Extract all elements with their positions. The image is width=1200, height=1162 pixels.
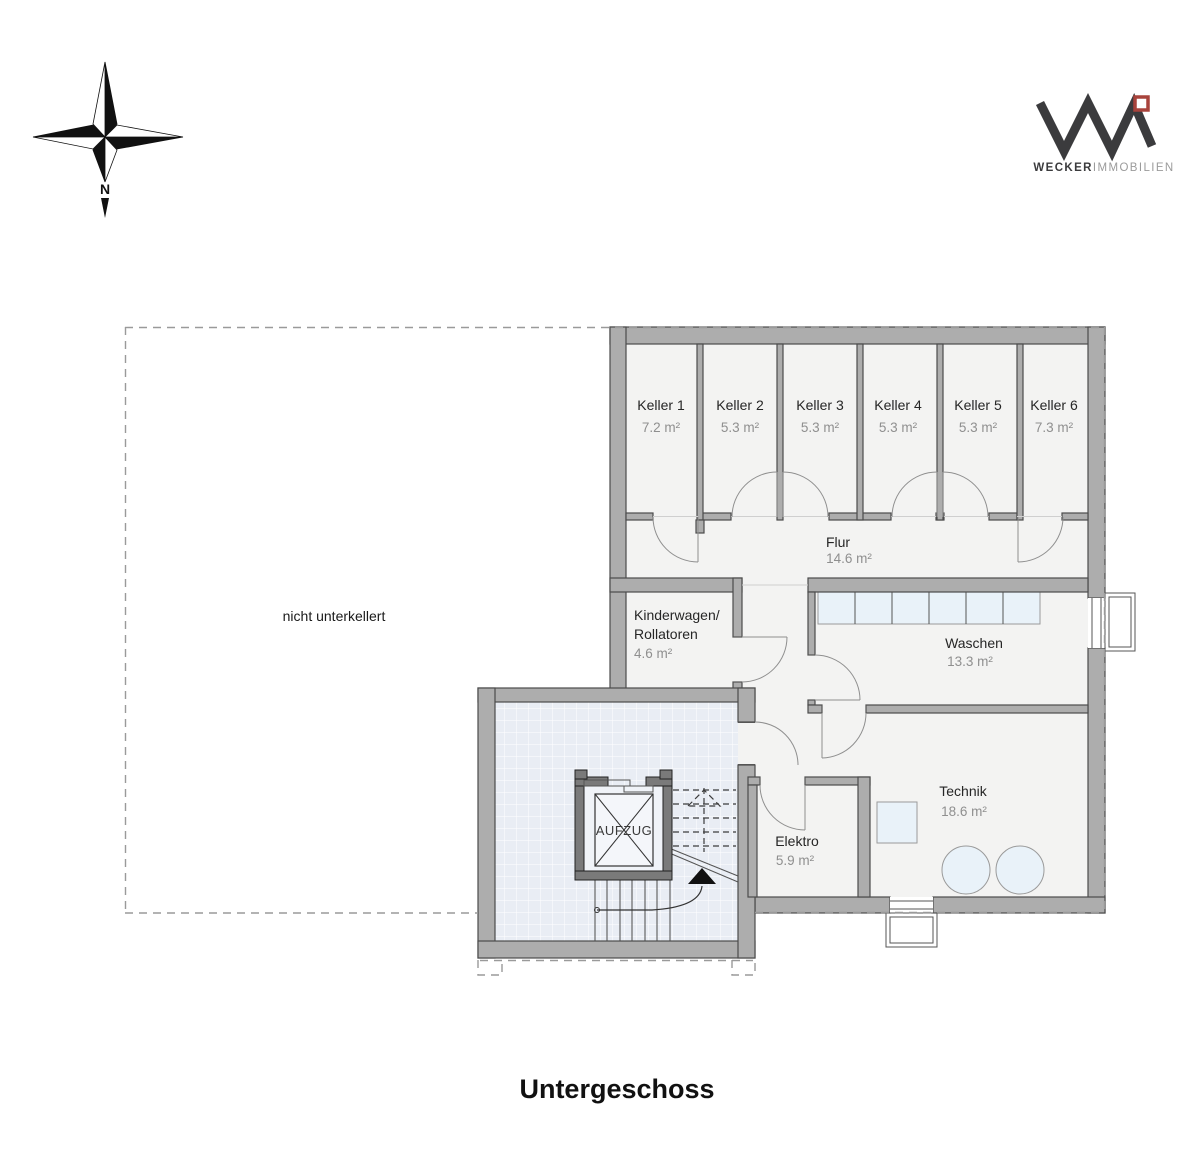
floorplan-page: AUFZUG xyxy=(0,0,1200,1162)
room-area: 14.6 m² xyxy=(826,551,872,566)
room-name: Kinderwagen/ xyxy=(634,607,720,623)
room-name: Technik xyxy=(939,783,987,799)
technik-equipment-box xyxy=(877,802,917,843)
logo-wordmark: WECKERIMMOBILIEN xyxy=(1033,162,1174,174)
room-area: 18.6 m² xyxy=(941,804,987,819)
room-area: 7.3 m² xyxy=(1035,420,1074,435)
room-area: 7.2 m² xyxy=(642,420,681,435)
room-name: Keller 2 xyxy=(716,397,764,413)
compass-north-arrow xyxy=(101,198,109,218)
room-name: Flur xyxy=(826,534,850,550)
technik-tank-1 xyxy=(942,846,990,894)
room-name: Keller 3 xyxy=(796,397,844,413)
elevator-label: AUFZUG xyxy=(596,823,652,838)
logo-accent-square xyxy=(1135,97,1148,110)
room-area: 5.3 m² xyxy=(721,420,760,435)
unexcavated-label: nicht unterkellert xyxy=(283,608,386,624)
room-name: Keller 1 xyxy=(637,397,685,413)
lightwell-window-right xyxy=(1088,593,1135,651)
lightwell-window-bottom xyxy=(886,897,937,947)
technik-tank-2 xyxy=(996,846,1044,894)
room-area: 5.3 m² xyxy=(879,420,918,435)
room-area: 5.3 m² xyxy=(801,420,840,435)
page-title: Untergeschoss xyxy=(519,1074,714,1104)
company-logo: WECKERIMMOBILIEN xyxy=(1033,97,1174,174)
elevator: AUFZUG xyxy=(575,770,672,880)
room-area: 13.3 m² xyxy=(947,654,993,669)
compass-icon: N xyxy=(33,62,183,218)
room-name: Waschen xyxy=(945,635,1003,651)
room-name-line2: Rollatoren xyxy=(634,626,698,642)
room-name: Elektro xyxy=(775,833,819,849)
compass-north-label: N xyxy=(100,181,110,197)
room-area: 5.3 m² xyxy=(959,420,998,435)
room-name: Keller 4 xyxy=(874,397,922,413)
room-area: 5.9 m² xyxy=(776,853,815,868)
floorplan-svg: AUFZUG xyxy=(0,0,1200,1162)
room-name: Keller 6 xyxy=(1030,397,1078,413)
room-area: 4.6 m² xyxy=(634,646,673,661)
washing-machine-row xyxy=(818,592,1040,624)
room-name: Keller 5 xyxy=(954,397,1002,413)
